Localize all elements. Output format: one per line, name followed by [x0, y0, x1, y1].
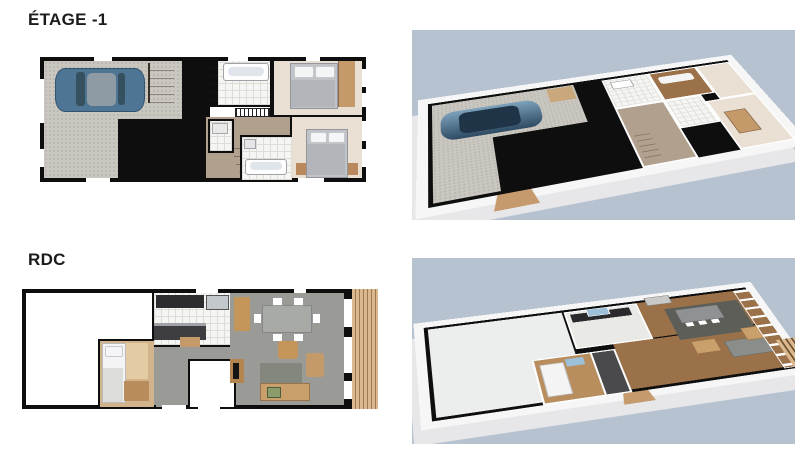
rug: [260, 363, 302, 383]
stair-landing-strip: [206, 61, 218, 105]
right-wall-window: [362, 69, 366, 87]
washer: [212, 123, 228, 134]
bathroom2-floor: [240, 135, 294, 182]
sink-1: [244, 139, 256, 149]
wardrobe-1: [338, 61, 355, 107]
pillow: [310, 132, 327, 143]
bathroom1-floor: [218, 61, 270, 105]
floor-title-etage: ÉTAGE -1: [28, 10, 108, 30]
kitchen-sink: [206, 295, 229, 310]
garage-door-opening: [40, 79, 44, 123]
bedroom-window-3d: [565, 357, 585, 367]
bathtub-2-basin: [250, 162, 282, 170]
pillow: [105, 346, 123, 357]
dining-chair: [253, 313, 262, 324]
radiator-niche: [210, 107, 270, 117]
dining-chair: [312, 313, 321, 324]
right-wall-window: [362, 121, 366, 141]
laundry-room: [208, 119, 234, 153]
pillow: [315, 66, 335, 78]
pillow: [328, 132, 345, 143]
floor-title-rdc: RDC: [28, 250, 66, 270]
storage-room: [188, 359, 236, 409]
single-bed: [102, 343, 126, 403]
bathtub-1-basin: [228, 67, 264, 76]
car-windshield: [76, 72, 85, 106]
bed-blanket: [103, 368, 123, 402]
left-wall-window: [40, 149, 44, 167]
unexcavated-area: [118, 119, 182, 178]
bed-blanket: [291, 80, 335, 107]
entry-door: [196, 289, 218, 293]
view-3d-rdc: [412, 258, 795, 444]
bathtub-1: [223, 63, 269, 81]
bay-window: [344, 381, 352, 399]
sideboard: [234, 297, 250, 331]
car-roof: [87, 73, 116, 106]
pillow: [294, 66, 314, 78]
tv: [233, 363, 239, 379]
kitchen-floor: [154, 293, 230, 345]
hall-stairs-3d: [632, 129, 662, 160]
tub-3d: [657, 72, 695, 84]
plan-2d-etage: [40, 57, 366, 182]
vanity-3d: [610, 79, 635, 89]
bed-3d: [723, 108, 761, 133]
radiator: [235, 108, 270, 117]
bed-blanket: [307, 144, 345, 175]
sofa: [260, 383, 310, 401]
garage-staircase: [148, 63, 174, 103]
wood-deck: [352, 289, 378, 409]
right-wall-window: [362, 149, 366, 167]
right-wall-window: [362, 93, 366, 107]
nightstand: [296, 163, 306, 175]
view-3d-etage: [412, 30, 795, 220]
bottom-door-rdc: [162, 405, 186, 409]
kitchen-cabinet: [180, 337, 200, 347]
floorplan-page: ÉTAGE -1 RDC: [0, 0, 800, 468]
car-top-view: [55, 68, 145, 112]
bottom-wall-window-garage: [86, 178, 110, 182]
rdc-3d-plan: [424, 287, 795, 421]
car-rear-window: [118, 73, 125, 105]
bay-window: [344, 299, 352, 327]
storage-door: [198, 405, 220, 409]
dining-chair: [272, 297, 283, 306]
building-3d-rdc: [420, 262, 792, 432]
kitchen-counter-top: [156, 295, 204, 308]
car-3d-glass: [458, 105, 521, 135]
top-wall-window-garage: [94, 57, 112, 61]
tv-stand: [230, 359, 244, 383]
top-wall-window-bath: [228, 57, 248, 61]
plan-2d-rdc: [22, 289, 378, 409]
armchair: [306, 353, 324, 377]
bottom-wall-window-bedroom2: [298, 178, 324, 182]
plant: [267, 387, 281, 398]
armchair: [278, 341, 298, 359]
small-bedroom-floor: [98, 339, 156, 407]
bedroom2-floor: [292, 117, 362, 178]
building-3d-etage: [424, 36, 784, 206]
top-wall-window-bedroom1: [306, 57, 320, 61]
dining-chair: [293, 297, 304, 306]
bed-double-1: [290, 63, 338, 109]
nightstand: [348, 163, 358, 175]
bed-double-2: [306, 129, 348, 178]
bay-window: [344, 337, 352, 373]
dining-table: [262, 305, 312, 333]
bedroom-bench: [124, 381, 149, 401]
single-bed-3d: [539, 362, 573, 397]
bedroom1-floor: [274, 61, 362, 115]
top-wall-window-rdc: [294, 289, 306, 293]
bedroom-closet: [126, 343, 148, 379]
bathtub-2: [245, 159, 287, 175]
